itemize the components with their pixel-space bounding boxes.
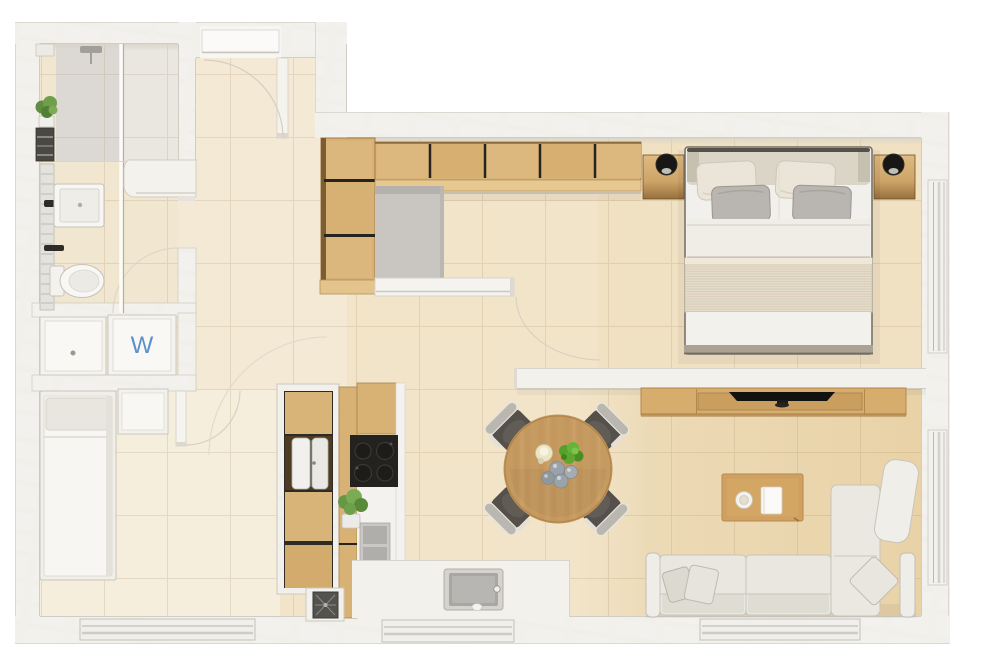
svg-text:W: W bbox=[131, 332, 154, 359]
